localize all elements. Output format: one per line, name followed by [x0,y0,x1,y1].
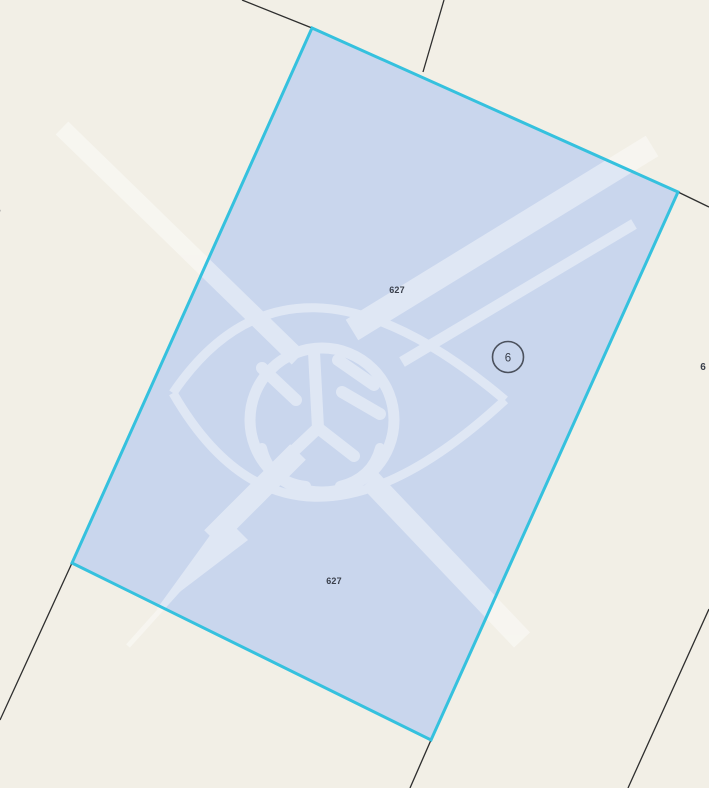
edge-label-right-partial: 6 [700,362,706,373]
building-number-badge-label: 6 [505,353,511,365]
parcel-number-label-top: 627 [389,285,405,295]
map-viewport[interactable]: 627 627 6 5 6 [0,0,709,788]
watermark-monogram-stroke [314,352,318,428]
parcel-number-label-bottom: 627 [326,576,342,586]
cadastral-map-canvas[interactable]: 627 627 6 5 6 [0,0,709,788]
